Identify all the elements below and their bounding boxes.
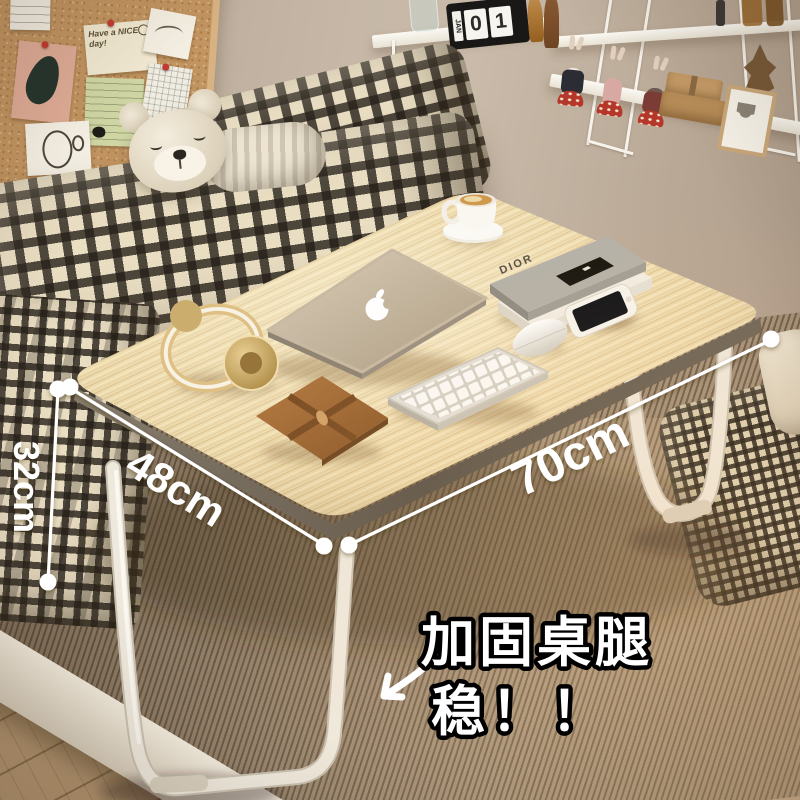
dimension-endpoint-dot [40, 574, 57, 591]
dimension-endpoint-dot [62, 379, 79, 396]
annotations: 32cm 48cm 70cm 加固桌腿 稳！！ [0, 0, 800, 800]
height-dimension-line [48, 390, 58, 582]
dimension-endpoint-dot [316, 538, 333, 555]
product-photo-folding-bed-table: Have a NICE day! JAN 0 1 [0, 0, 800, 800]
dimension-endpoint-dot [763, 331, 780, 348]
callout-line2: 稳！！ [431, 682, 611, 742]
height-dimension-label: 32cm [6, 441, 47, 533]
dimension-endpoint-dot [341, 537, 358, 554]
callout-line1: 加固桌腿 [421, 613, 653, 673]
length-dimension-label: 70cm [503, 406, 637, 507]
